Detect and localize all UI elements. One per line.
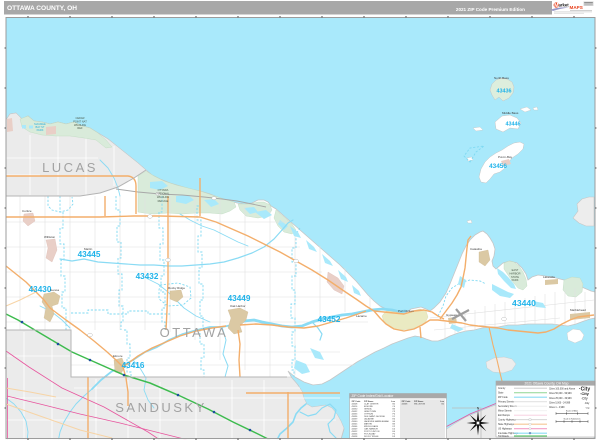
svg-text:Genoa: Genoa [50, 288, 59, 292]
svg-text:OTTAWA: OTTAWA [158, 188, 169, 192]
svg-text:Exit Ramps: Exit Ramps [498, 414, 511, 417]
svg-text:Toll Roads: Toll Roads [498, 436, 510, 438]
svg-text:CEDAR: CEDAR [75, 116, 84, 120]
svg-text:OTTAWA COUNTY, OH: OTTAWA COUNTY, OH [7, 5, 77, 12]
svg-text:43432: 43432 [136, 272, 159, 281]
svg-text:State Highways: State Highways [498, 423, 515, 426]
svg-text:Catawba: Catawba [470, 247, 482, 251]
svg-text:Port Clinton: Port Clinton [398, 309, 414, 313]
svg-text:STATE: STATE [511, 275, 519, 279]
svg-text:Marblehead: Marblehead [570, 308, 586, 312]
svg-text:WILDLIFE: WILDLIFE [74, 123, 86, 127]
svg-text:Cities 100,000 and Above: Cities 100,000 and Above [549, 388, 576, 391]
svg-text:·City: ·City [581, 397, 588, 401]
svg-text:Put-In-Bay: Put-In-Bay [498, 155, 513, 159]
svg-text:·City: ·City [584, 401, 590, 405]
svg-text:Minor Streets: Minor Streets [498, 410, 513, 413]
svg-text:ZIP Code Index/Grid Locator: ZIP Code Index/Grid Locator [352, 394, 395, 398]
svg-text:REF: REF [77, 126, 83, 130]
svg-text:43458: 43458 [352, 436, 359, 438]
svg-text:Williston: Williston [44, 235, 55, 239]
svg-text:Cities 50,000 - 99,999: Cities 50,000 - 99,999 [549, 392, 572, 395]
svg-text:ZIP Name: ZIP Name [364, 401, 374, 403]
svg-text:SANDUSKY: SANDUSKY [115, 400, 207, 415]
svg-text:Scale in Miles: Scale in Miles [566, 410, 578, 412]
svg-text:OTTAWA: OTTAWA [160, 325, 229, 340]
svg-text:43416: 43416 [122, 361, 145, 370]
svg-text:43468: 43468 [402, 404, 409, 406]
svg-text:MAPS: MAPS [570, 5, 583, 10]
svg-text:ZIP Code: ZIP Code [402, 401, 412, 403]
svg-text:Gypsum: Gypsum [446, 313, 458, 317]
svg-text:2021 ZIP Code Premium Edition: 2021 ZIP Code Premium Edition [456, 7, 525, 12]
svg-text:43452: 43452 [318, 315, 341, 324]
svg-text:Scale in Kilometers: Scale in Kilometers [563, 417, 580, 420]
svg-text:WILDLIFE: WILDLIFE [157, 195, 169, 199]
svg-text:LUCAS: LUCAS [42, 160, 98, 175]
svg-text:County: County [498, 387, 506, 390]
svg-text:REFUGE: REFUGE [158, 199, 169, 203]
svg-text:PARK: PARK [512, 278, 519, 282]
svg-text:Oak Harbor: Oak Harbor [230, 304, 246, 308]
svg-text:Lacarne: Lacarne [356, 314, 367, 318]
svg-text:43440: 43440 [512, 298, 536, 308]
svg-text:Martin: Martin [84, 247, 93, 251]
svg-text:43430: 43430 [29, 285, 52, 294]
svg-text:North Bass: North Bass [494, 76, 509, 80]
svg-text:Lakeside: Lakeside [543, 275, 555, 279]
svg-text:Elmore: Elmore [113, 354, 123, 358]
svg-text:Cities 5,000 - 24,999: Cities 5,000 - 24,999 [549, 402, 571, 405]
svg-text:Rocky Ridge: Rocky Ridge [168, 286, 185, 290]
svg-text:State: State [498, 392, 504, 395]
svg-text:arket: arket [559, 3, 570, 8]
svg-text:Curtice: Curtice [22, 209, 32, 213]
svg-text:EAST: EAST [512, 268, 519, 272]
svg-text:43456: 43456 [489, 163, 507, 170]
svg-text:POINT NAT: POINT NAT [73, 119, 87, 123]
svg-text:43436: 43436 [497, 89, 512, 95]
svg-text:ZIP Code: ZIP Code [352, 401, 362, 403]
svg-text:·City: ·City [580, 391, 590, 396]
svg-text:Cities 25,000 - 49,999: Cities 25,000 - 49,999 [549, 397, 572, 400]
svg-text:US Highways: US Highways [498, 429, 513, 431]
svg-text:WILLISTON: WILLISTON [414, 404, 426, 406]
svg-text:HARBOR: HARBOR [509, 271, 520, 275]
svg-text:Cities 1 - 4,999: Cities 1 - 4,999 [549, 406, 565, 409]
svg-text:ROCKY RIDGE: ROCKY RIDGE [364, 436, 379, 438]
svg-text:Primary Streets: Primary Streets [498, 401, 515, 404]
svg-text:43446: 43446 [506, 122, 521, 128]
svg-text:Middle Bass: Middle Bass [502, 111, 519, 115]
svg-text:2021 Ottawa County, OH Map: 2021 Ottawa County, OH Map [525, 382, 569, 386]
svg-text:NATIONAL: NATIONAL [157, 192, 170, 196]
svg-text:ZIP Code: ZIP Code [498, 397, 508, 399]
svg-text:43445: 43445 [78, 250, 101, 259]
svg-text:County Highways: County Highways [498, 419, 517, 422]
svg-text:PARK: PARK [37, 128, 44, 132]
svg-text:43449: 43449 [228, 294, 251, 303]
svg-text:ZIP Name: ZIP Name [414, 401, 424, 403]
